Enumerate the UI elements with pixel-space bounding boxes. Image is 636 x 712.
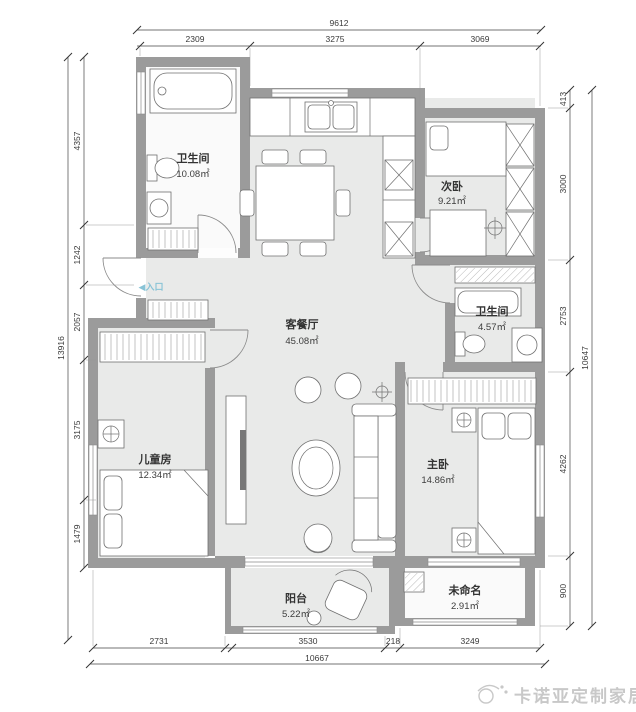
- floorplan-drawing: 卫生间 10.08㎡ 次卧 9.21㎡ 客餐厅 45.08㎡ 卫生间 4.57㎡…: [0, 0, 636, 712]
- brand-watermark-text: 卡诺亚定制家居: [514, 686, 636, 706]
- balcony-outer-window: [243, 627, 377, 633]
- master-wardrobe: [408, 378, 536, 404]
- label-second-bedroom-area: 9.21㎡: [438, 196, 466, 207]
- dim-bottom-seg-0: 2731: [150, 636, 169, 646]
- balcony-sliding-door: [245, 558, 373, 566]
- dim-right-seg-2: 2753: [558, 306, 568, 325]
- wc2-basin: [512, 328, 542, 362]
- label-living-area: 45.08㎡: [285, 336, 319, 347]
- dimensions-right: 413 3000 2753 4262 900 10647: [540, 86, 596, 630]
- brand-watermark: 卡诺亚定制家居: [478, 685, 636, 706]
- coffee-table: [292, 440, 340, 496]
- label-wc2-name: 卫生间: [476, 304, 509, 318]
- second-bedroom-wardrobe: [506, 124, 534, 256]
- label-second-bedroom-name: 次卧: [441, 179, 463, 193]
- dining-table: [240, 150, 350, 256]
- bathroom-window: [137, 72, 145, 114]
- lounge-chair: [304, 524, 332, 553]
- dim-top-seg-0: 2309: [186, 34, 205, 44]
- floorplan-canvas: 卫生间 10.08㎡ 次卧 9.21㎡ 客餐厅 45.08㎡ 卫生间 4.57㎡…: [0, 0, 636, 712]
- towel-rack: [148, 228, 198, 250]
- label-balcony-area: 5.22㎡: [282, 609, 310, 620]
- label-master-bedroom-name: 主卧: [427, 457, 449, 471]
- label-balcony-name: 阳台: [285, 591, 307, 605]
- dim-top-seg-1: 3275: [326, 34, 345, 44]
- nightstand: [452, 408, 476, 432]
- master-bedroom-window: [536, 445, 544, 517]
- dim-bottom-seg-3: 3249: [461, 636, 480, 646]
- kids-nightstand: [98, 420, 124, 448]
- dim-left-seg-4: 1479: [72, 524, 82, 543]
- dim-left-seg-3: 3175: [72, 420, 82, 439]
- washbasin: [147, 192, 171, 224]
- kitchen-window: [272, 89, 348, 97]
- entrance-label: ◀入口: [139, 282, 164, 292]
- stove: [385, 160, 413, 190]
- label-unnamed-area: 2.91㎡: [451, 601, 479, 612]
- dim-bottom-seg-1: 3530: [299, 636, 318, 646]
- unnamed-cabinet: [404, 572, 424, 592]
- fridge: [385, 222, 413, 256]
- label-wc2-area: 4.57㎡: [478, 322, 506, 333]
- dim-top-overall: 9612: [330, 18, 349, 28]
- dim-right-seg-4: 900: [558, 584, 568, 598]
- dim-top-seg-2: 3069: [471, 34, 490, 44]
- master-balcony-window: [428, 558, 520, 566]
- kids-room-window: [89, 445, 97, 515]
- wc2-shelf: [455, 267, 535, 283]
- label-master-bedroom-area: 14.86㎡: [421, 475, 455, 486]
- second-bedroom-desk: [430, 210, 486, 256]
- armchair: [295, 377, 321, 403]
- entry-cabinet: [148, 300, 208, 320]
- second-bedroom-bed: [426, 122, 506, 176]
- dim-right-overall: 10647: [580, 346, 590, 370]
- brand-logo-icon: [478, 685, 508, 703]
- kids-bed: [100, 470, 208, 556]
- label-wc1-name: 卫生间: [177, 151, 210, 165]
- kids-wardrobe: [100, 332, 205, 362]
- dim-left-seg-1: 1242: [72, 245, 82, 264]
- dim-left-seg-2: 2057: [72, 312, 82, 331]
- dim-right-seg-1: 3000: [558, 174, 568, 193]
- armchair: [335, 373, 361, 399]
- dim-bottom-overall: 10667: [305, 653, 329, 663]
- label-kids-room-area: 12.34㎡: [138, 470, 172, 481]
- unnamed-outer-window: [413, 619, 517, 625]
- dim-left-seg-0: 4357: [72, 131, 82, 150]
- entrance-door: [103, 258, 141, 296]
- dim-bottom-seg-2: 218: [386, 636, 400, 646]
- label-living-name: 客餐厅: [285, 317, 319, 331]
- bathtub: [150, 69, 236, 113]
- dim-right-seg-3: 4262: [558, 454, 568, 473]
- label-kids-room-name: 儿童房: [138, 452, 172, 466]
- tv-cabinet: [226, 396, 246, 524]
- label-unnamed-name: 未命名: [448, 583, 482, 597]
- label-wc1-area: 10.08㎡: [176, 169, 210, 180]
- sofa: [352, 404, 396, 552]
- nightstand: [452, 528, 476, 552]
- dim-left-overall: 13916: [56, 336, 66, 360]
- master-bed: [478, 408, 535, 554]
- dim-right-seg-0: 413: [558, 92, 568, 106]
